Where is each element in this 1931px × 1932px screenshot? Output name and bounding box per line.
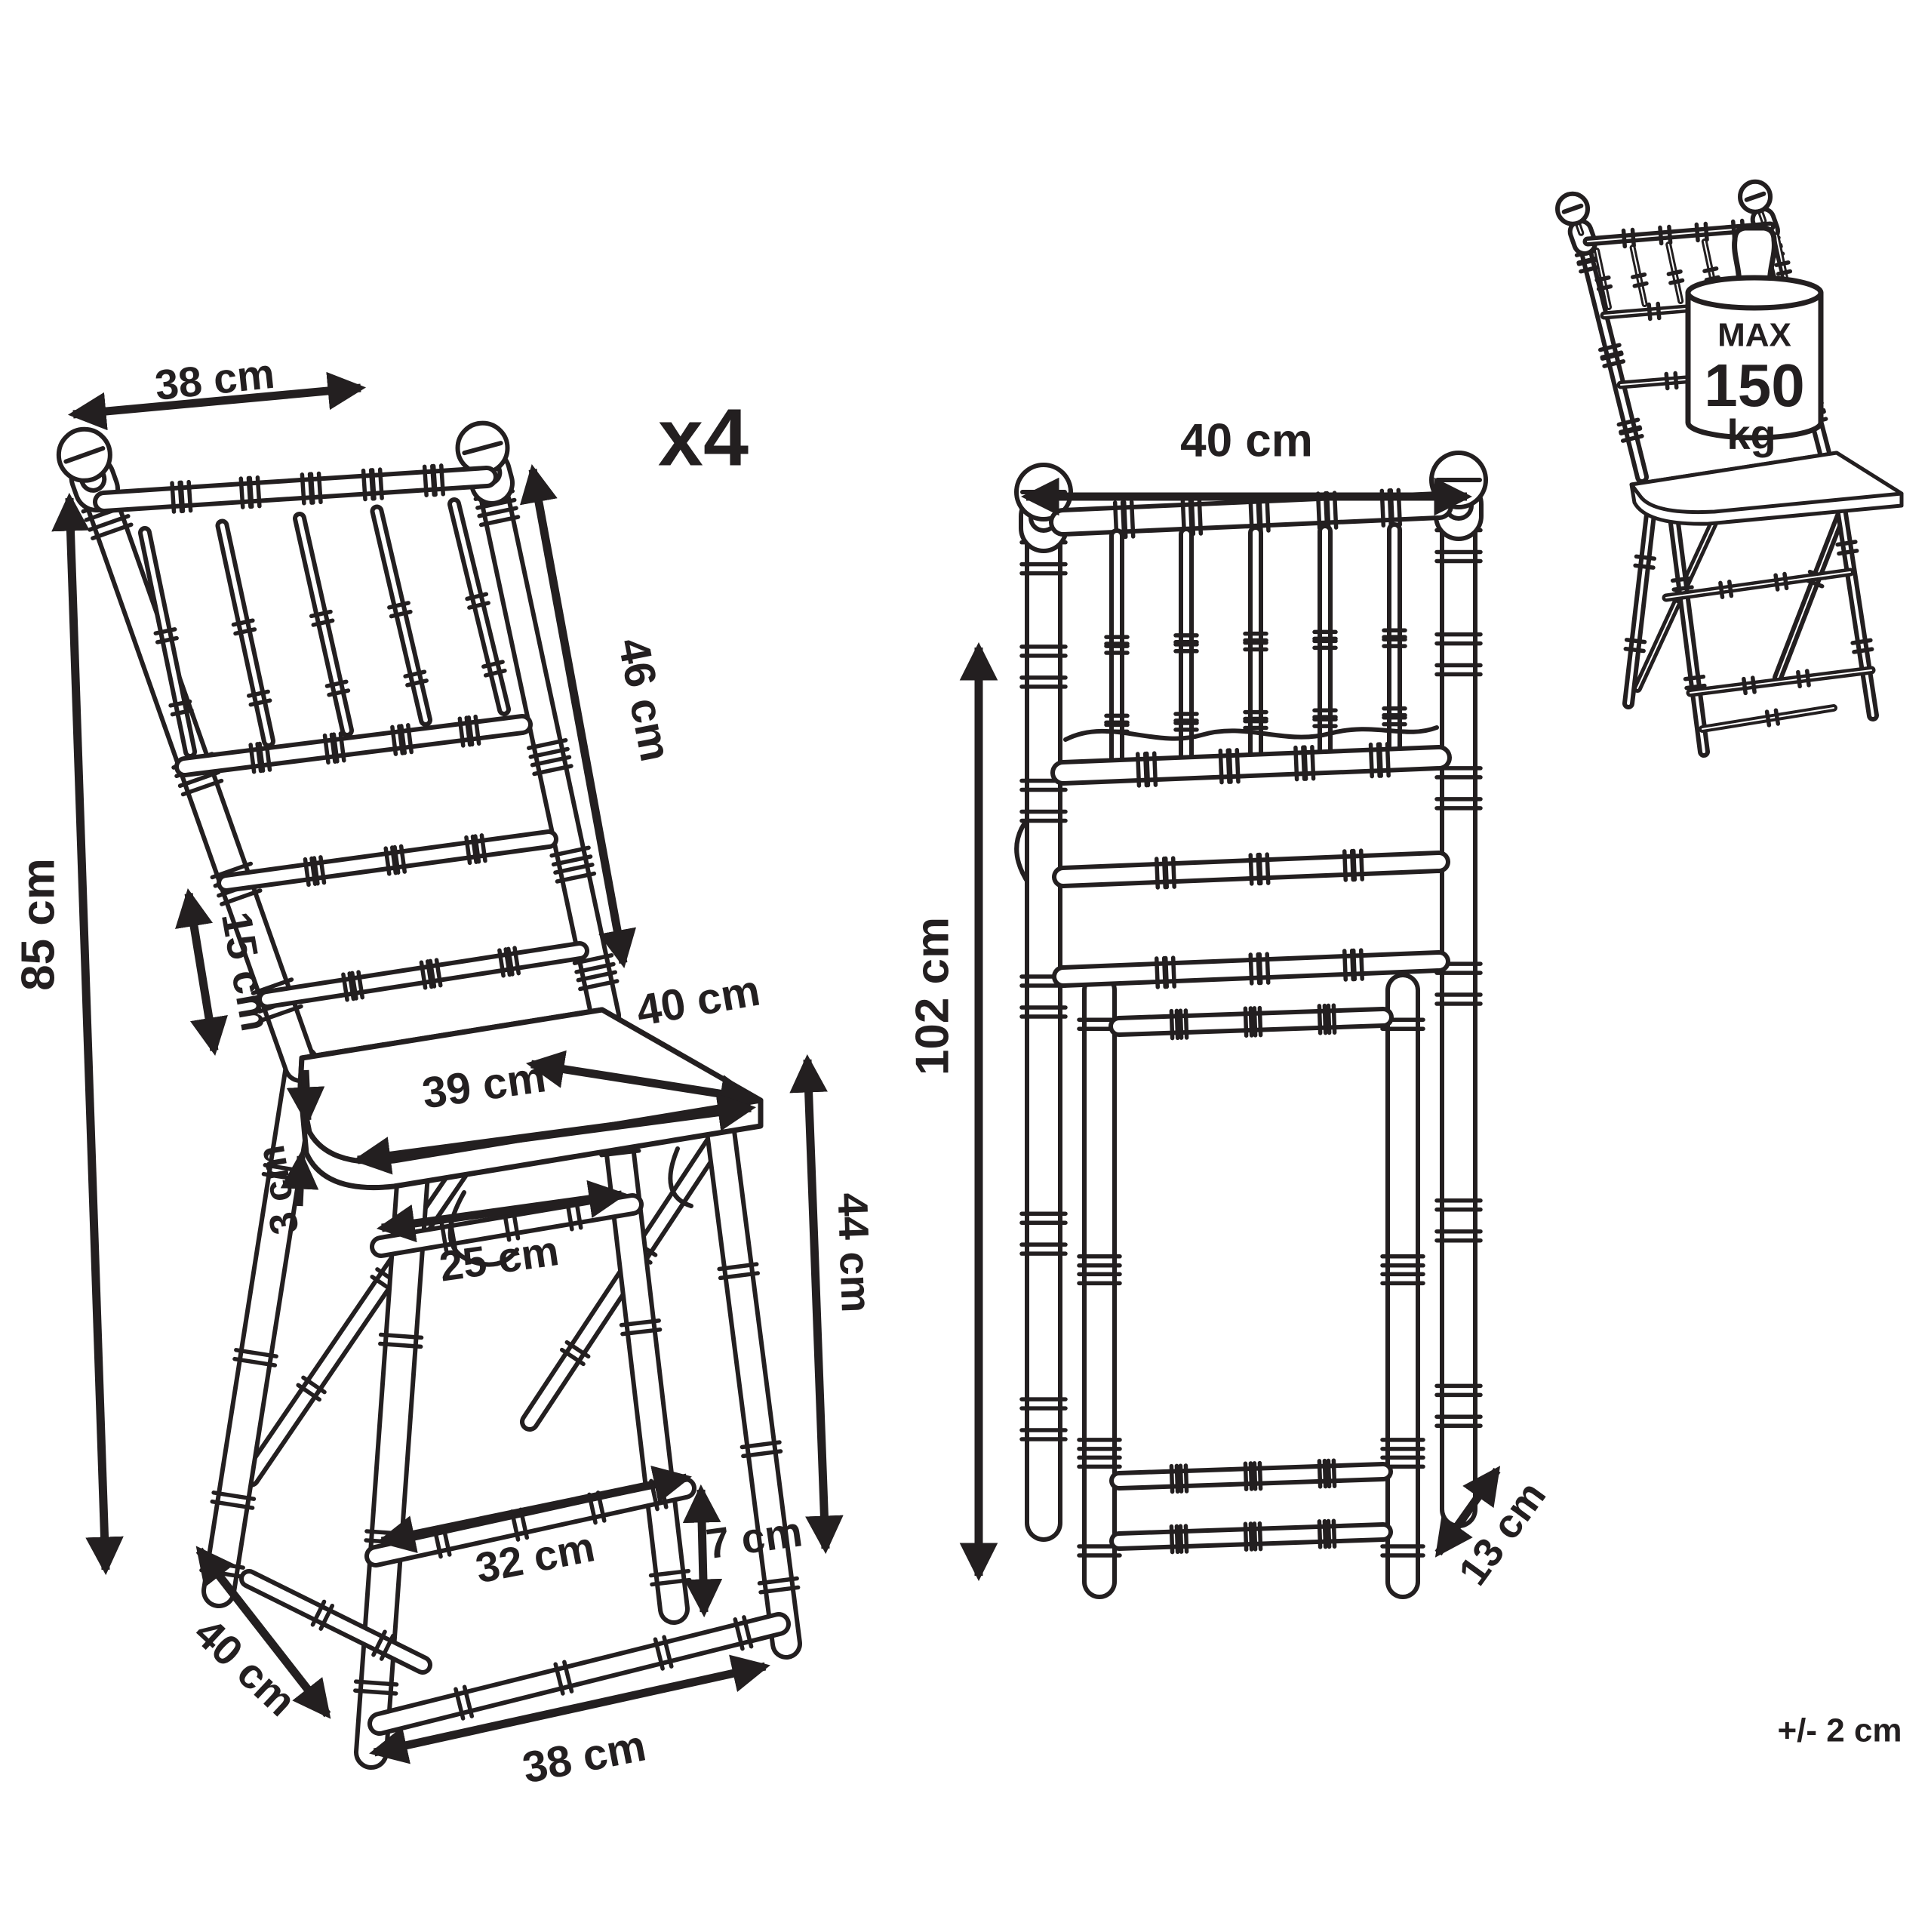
quantity-label: x4 (658, 392, 749, 483)
capacity-max-label: MAX (1717, 317, 1791, 354)
dim-seat-height-arrow (807, 1060, 826, 1549)
backrest-height-label: 46 cm (609, 634, 681, 765)
dim-foot-height-arrow (701, 1490, 704, 1612)
dim-seat-thickness-arrow-top (305, 1070, 307, 1120)
dim-back-gap-arrow (189, 894, 214, 1051)
back-gap-label: 15 cm (213, 909, 281, 1035)
total-height-label: 85 cm (12, 858, 64, 991)
capacity-value-label: 150 (1704, 352, 1804, 419)
folded-height-label: 102 cm (906, 917, 958, 1075)
dimension-diagram: 38 cm x4 46 cm 85 cm 15 cm 40 cm 39 cm 3… (0, 0, 1931, 1932)
tolerance-label: +/- 2 cm (1777, 1712, 1902, 1749)
folded-chair-illustration (1016, 453, 1486, 1582)
seat-height-label: 44 cm (829, 1192, 881, 1313)
dim-total-height-arrow (69, 498, 106, 1570)
capacity-chair-illustration (1557, 182, 1902, 752)
folded-width-label: 40 cm (1180, 414, 1313, 466)
diagram-page: 38 cm x4 46 cm 85 cm 15 cm 40 cm 39 cm 3… (0, 0, 1931, 1932)
capacity-unit-label: kg (1727, 411, 1776, 458)
seat-depth-label: 40 cm (633, 966, 764, 1036)
base-width-label: 38 cm (518, 1721, 650, 1792)
